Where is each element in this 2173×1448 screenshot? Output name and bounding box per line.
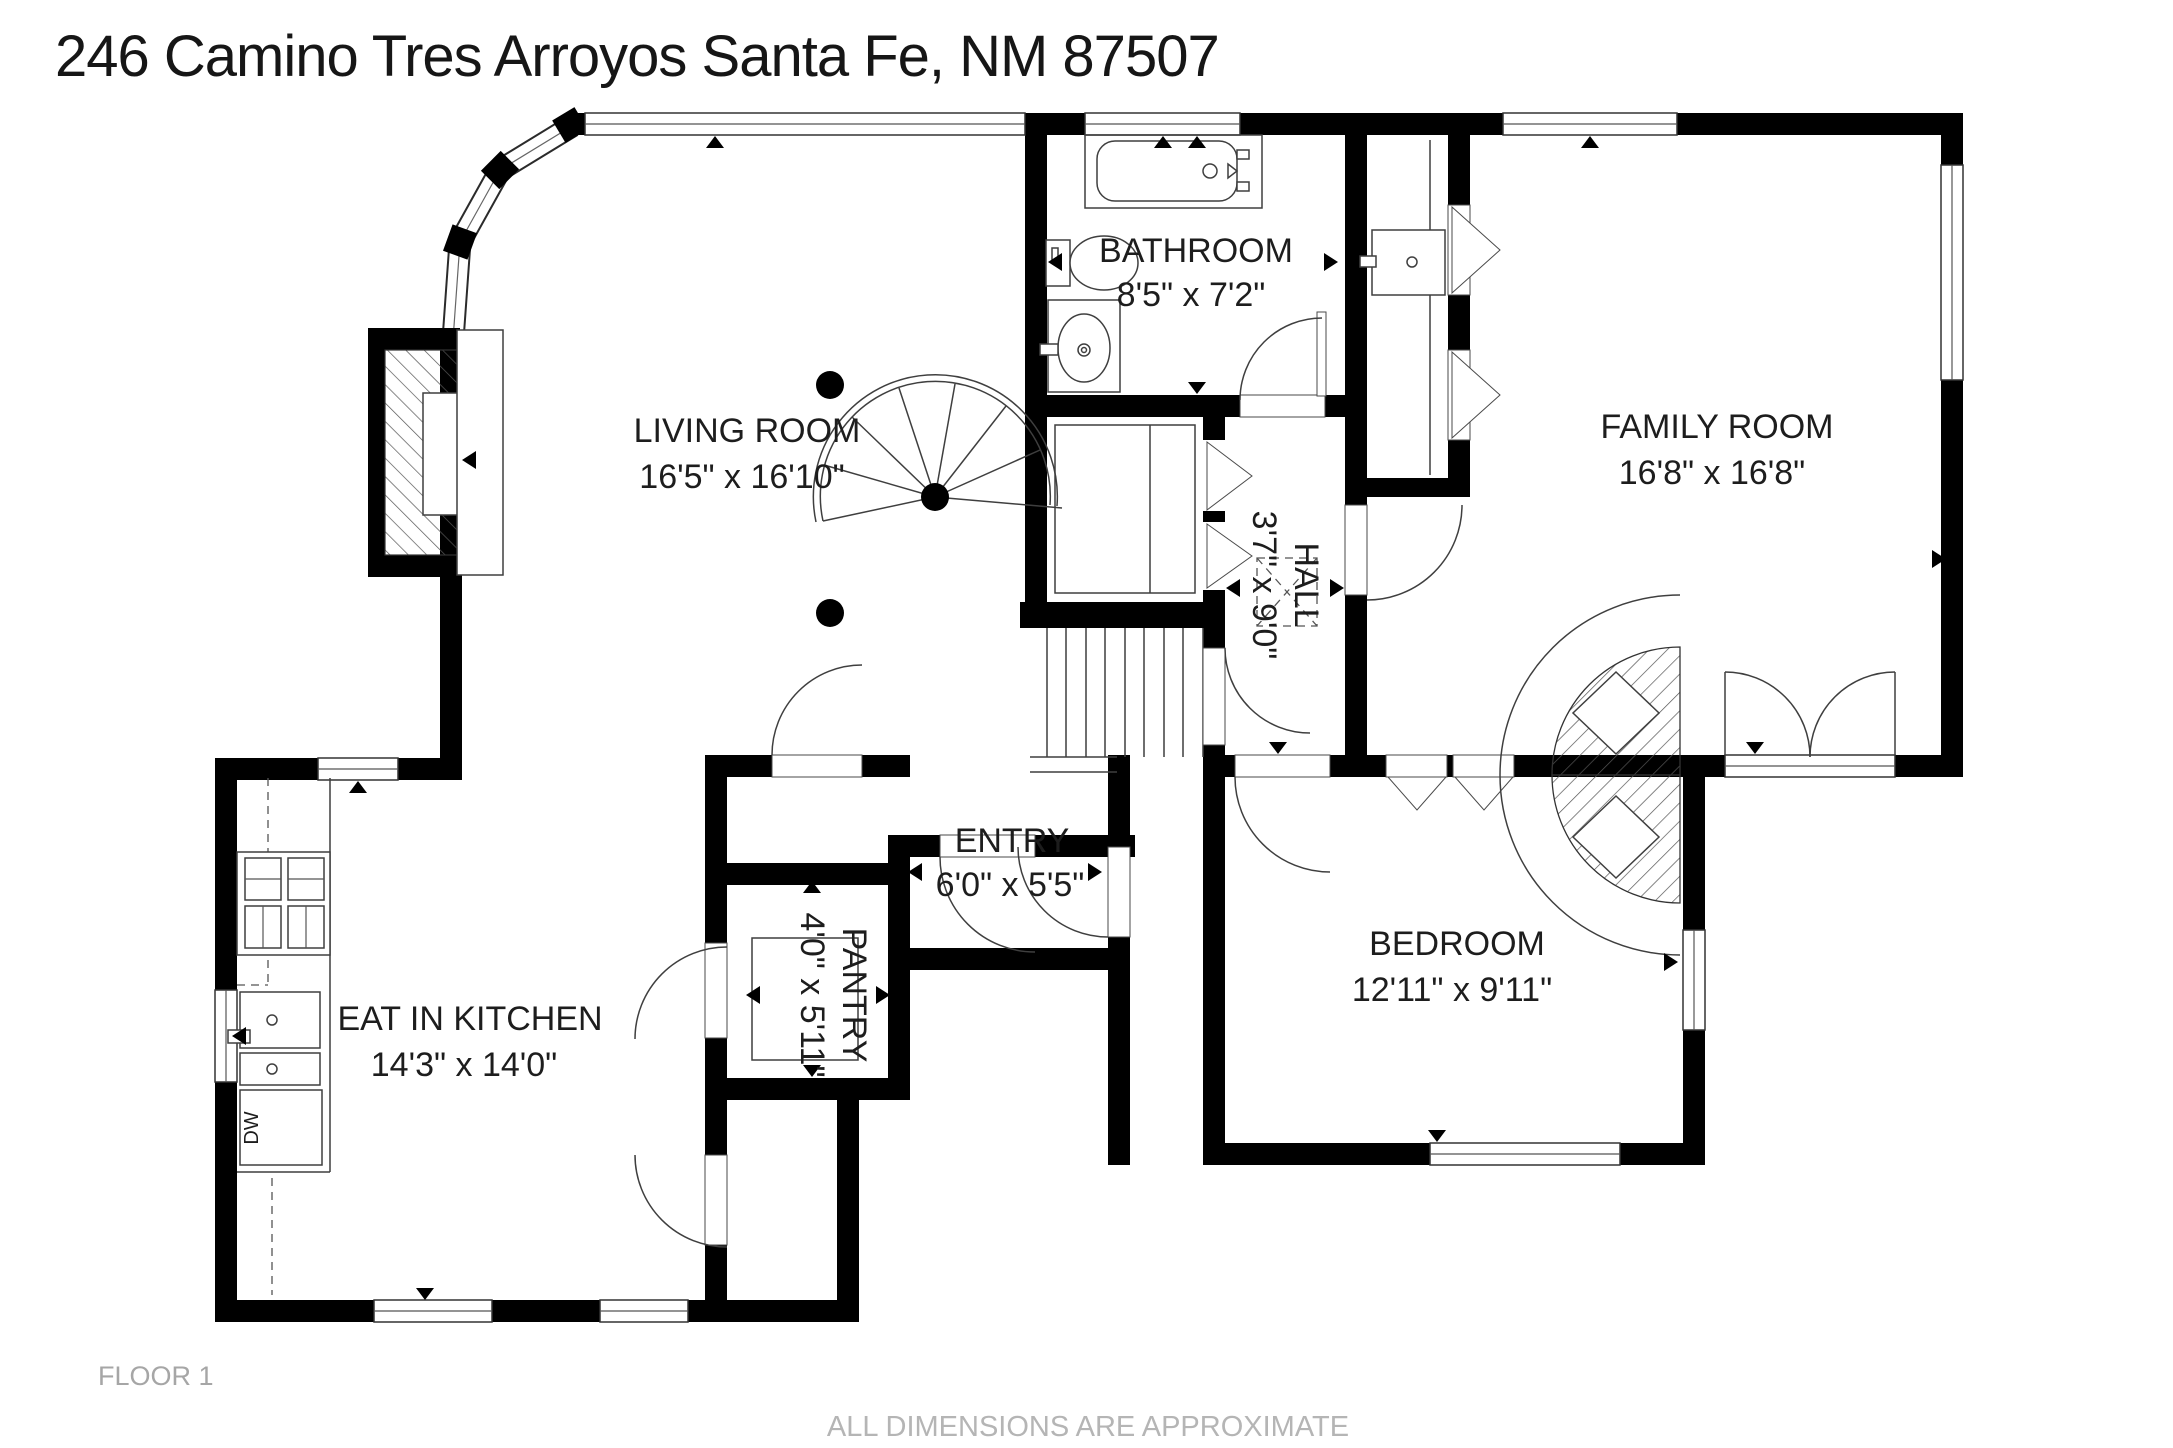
svg-text:BEDROOM: BEDROOM: [1369, 925, 1545, 963]
stove-icon: [237, 852, 330, 955]
svg-text:HALL: HALL: [1287, 542, 1325, 627]
structural-post: [816, 371, 844, 399]
window-family-right: [1941, 165, 1963, 380]
svg-text:ENTRY: ENTRY: [955, 822, 1070, 860]
dishwasher-icon: DW: [240, 1090, 322, 1165]
fireplace-living: [368, 328, 503, 577]
sink-faucet: [1360, 256, 1376, 267]
svg-text:LIVING ROOM: LIVING ROOM: [634, 412, 861, 450]
svg-text:6'0" x 5'5": 6'0" x 5'5": [936, 866, 1085, 904]
svg-text:16'8" x 16'8": 16'8" x 16'8": [1619, 454, 1805, 492]
structural-post: [816, 599, 844, 627]
sink-faucet: [1040, 344, 1058, 355]
tub-faucet: [1237, 150, 1249, 159]
window-bedroom-right: [1683, 930, 1705, 1030]
svg-text:3'7" x 9'0": 3'7" x 9'0": [1245, 511, 1283, 660]
svg-text:14'3" x 14'0": 14'3" x 14'0": [371, 1046, 557, 1084]
svg-text:16'5" x 16'10": 16'5" x 16'10": [639, 458, 844, 496]
svg-text:12'11" x 9'11": 12'11" x 9'11": [1352, 971, 1552, 1009]
svg-text:PANTRY: PANTRY: [835, 928, 873, 1063]
window-kitchen-bottom-1: [374, 1300, 492, 1322]
svg-text:BATHROOM: BATHROOM: [1099, 232, 1293, 270]
window-living-top: [585, 113, 1025, 135]
bathtub-icon: [1097, 141, 1237, 201]
utility-sink-icon: [1372, 230, 1445, 295]
hearth: [457, 330, 503, 575]
svg-text:FAMILY ROOM: FAMILY ROOM: [1600, 408, 1833, 446]
window-kitchen-bottom-2: [600, 1300, 688, 1322]
svg-text:EAT IN KITCHEN: EAT IN KITCHEN: [337, 1000, 602, 1038]
window-bedroom-bottom: [1430, 1143, 1620, 1165]
tub-faucet: [1237, 182, 1249, 191]
window-bathroom-top: [1085, 113, 1240, 135]
window-family-top: [1503, 113, 1677, 135]
disclaimer: ALL DIMENSIONS ARE APPROXIMATE: [827, 1411, 1349, 1443]
page-title: 246 Camino Tres Arroyos Santa Fe, NM 875…: [55, 24, 1219, 89]
dishwasher-label: DW: [241, 1111, 263, 1144]
svg-text:4'0" x 5'11": 4'0" x 5'11": [793, 912, 831, 1077]
floor-plan: DW 246 Camino Tres Arroyos Santa Fe, NM …: [0, 0, 2173, 1448]
svg-text:8'5" x 7'2": 8'5" x 7'2": [1117, 276, 1266, 314]
window-kitchen-top: [318, 758, 398, 780]
floor-label: FLOOR 1: [98, 1361, 214, 1391]
firebox: [423, 393, 459, 515]
